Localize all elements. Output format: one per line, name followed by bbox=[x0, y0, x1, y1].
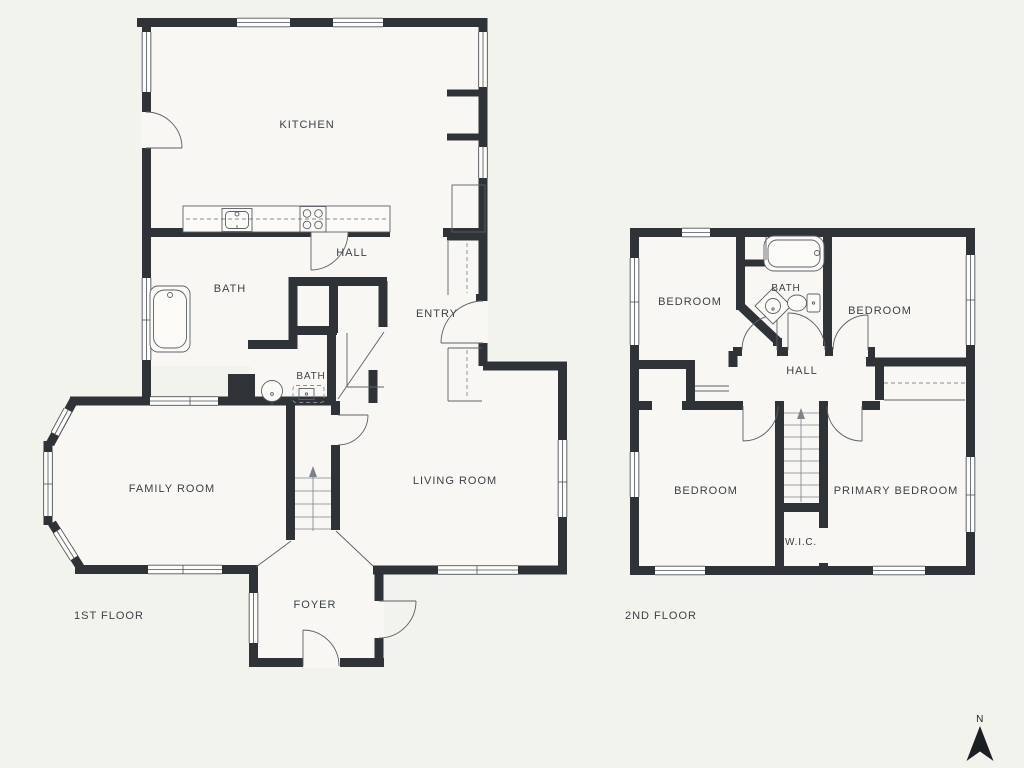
floor1-title: 1ST FLOOR bbox=[74, 610, 144, 622]
room-label-kitchen: KITCHEN bbox=[279, 119, 334, 131]
room-label-bedroom-bl: BEDROOM bbox=[674, 485, 738, 497]
room-label-living-room: LIVING ROOM bbox=[413, 475, 497, 487]
room-label-wic: W.I.C. bbox=[785, 537, 817, 548]
room-label-bedroom-tr: BEDROOM bbox=[848, 305, 912, 317]
room-label-bath: BATH bbox=[771, 283, 800, 294]
room-label-entry: ENTRY bbox=[416, 308, 458, 320]
kitchen-counter bbox=[183, 206, 390, 232]
room-label-bath-small: BATH bbox=[296, 371, 325, 382]
second-floor-door-openings bbox=[742, 346, 868, 357]
north-label: N bbox=[976, 714, 984, 725]
floor-plan-canvas: KITCHEN HALL BATH ENTRY BATH FAMILY ROOM… bbox=[0, 0, 1024, 768]
bathtub-icon bbox=[150, 286, 190, 352]
room-label-bedroom-tl: BEDROOM bbox=[658, 296, 722, 308]
first-floor-plan: KITCHEN HALL BATH ENTRY BATH FAMILY ROOM… bbox=[44, 18, 568, 668]
room-label-primary-bedroom: PRIMARY BEDROOM bbox=[834, 485, 959, 497]
bathtub-icon bbox=[764, 236, 824, 271]
room-label-foyer: FOYER bbox=[294, 599, 337, 611]
north-arrow-icon: N bbox=[967, 714, 994, 761]
foyer-side-door bbox=[379, 601, 416, 638]
north-arrow bbox=[967, 726, 994, 761]
room-label-bath: BATH bbox=[214, 283, 247, 295]
room-label-hall: HALL bbox=[786, 365, 818, 377]
floor2-title: 2ND FLOOR bbox=[625, 610, 697, 622]
second-floor-fill bbox=[630, 228, 975, 575]
room-label-hall: HALL bbox=[336, 247, 368, 259]
bay-window bbox=[44, 452, 53, 516]
chimney bbox=[228, 374, 255, 402]
room-label-family-room: FAMILY ROOM bbox=[129, 483, 215, 495]
second-floor-plan: BEDROOM BATH BEDROOM HALL BEDROOM PRIMAR… bbox=[625, 228, 975, 622]
